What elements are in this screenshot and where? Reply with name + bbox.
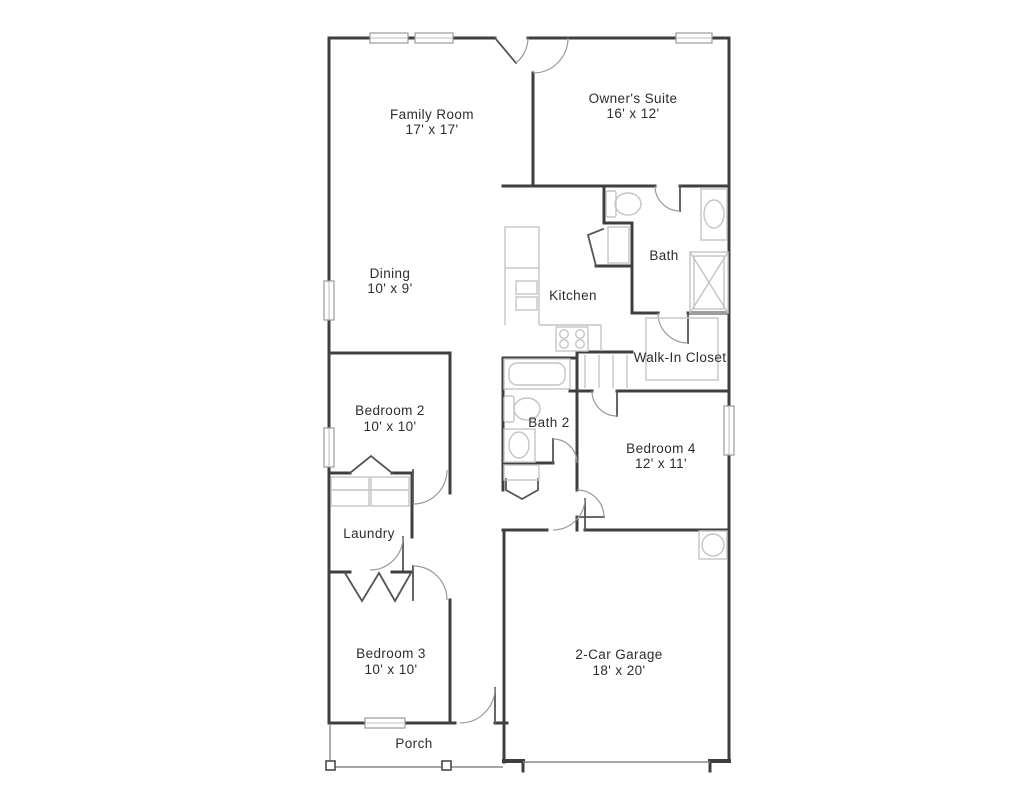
bedroom2-door <box>413 470 447 504</box>
floor-plan: Family Room 17' x 17' Owner's Suite 16' … <box>0 0 1017 804</box>
bath2-door <box>553 439 577 463</box>
window <box>370 33 408 43</box>
room-label-owners-suite: Owner's Suite <box>589 91 678 106</box>
bath-door <box>655 186 680 211</box>
room-dims-bedroom-2: 10' x 10' <box>363 419 416 434</box>
room-label-bath-2: Bath 2 <box>528 415 569 430</box>
garage-entry-door <box>553 499 585 530</box>
owners-suite-door <box>533 38 568 73</box>
washer-dryer <box>331 477 409 506</box>
closet-shelving <box>646 318 718 380</box>
porch-post <box>326 761 335 770</box>
bedroom4-closet-shelf <box>585 355 627 388</box>
room-label-bedroom-3: Bedroom 3 <box>356 646 426 661</box>
room-dims-dining: 10' x 9' <box>367 281 412 296</box>
shower <box>690 252 728 313</box>
porch-post <box>442 761 451 770</box>
room-label-bedroom-2: Bedroom 2 <box>355 403 425 418</box>
room-label-garage: 2-Car Garage <box>575 647 662 662</box>
laundry-door <box>370 537 403 570</box>
bathtub <box>504 359 570 389</box>
floor-plan-page: Family Room 17' x 17' Owner's Suite 16' … <box>0 0 1017 804</box>
front-door <box>460 688 495 723</box>
doors <box>345 38 688 723</box>
window <box>415 33 453 43</box>
vanity-sink <box>701 189 727 240</box>
refrigerator <box>505 227 539 268</box>
stove <box>556 327 588 351</box>
room-dims-garage: 18' x 20' <box>592 663 645 678</box>
room-labels: Family Room 17' x 17' Owner's Suite 16' … <box>343 91 726 751</box>
room-dims-bedroom-4: 12' x 11' <box>635 456 687 471</box>
bedroom4-closet-door <box>592 391 617 416</box>
room-label-bath: Bath <box>649 248 678 263</box>
kitchen-sink <box>516 281 537 310</box>
room-label-walk-in-closet: Walk-In Closet <box>634 350 727 365</box>
window <box>724 406 734 455</box>
room-label-family-room: Family Room <box>390 107 474 122</box>
window <box>324 428 334 467</box>
linen-door <box>506 479 538 499</box>
room-dims-bedroom-3: 10' x 10' <box>364 662 417 677</box>
room-dims-family-room: 17' x 17' <box>405 122 458 137</box>
vanity-sink-2 <box>504 429 535 462</box>
window <box>365 718 405 728</box>
linen-shelf <box>504 465 539 480</box>
room-label-porch: Porch <box>395 736 432 751</box>
room-label-kitchen: Kitchen <box>549 288 597 303</box>
room-label-bedroom-4: Bedroom 4 <box>626 441 696 456</box>
room-dims-owners-suite: 16' x 12' <box>606 106 659 121</box>
room-label-laundry: Laundry <box>343 526 395 541</box>
water-heater <box>699 531 727 559</box>
pantry-shelf <box>608 227 629 263</box>
window <box>676 33 712 43</box>
rear-door <box>495 38 528 63</box>
window <box>324 281 334 320</box>
pantry-door <box>588 229 603 266</box>
room-label-dining: Dining <box>370 266 411 281</box>
toilet <box>606 191 641 217</box>
bedroom3-door <box>413 566 447 600</box>
